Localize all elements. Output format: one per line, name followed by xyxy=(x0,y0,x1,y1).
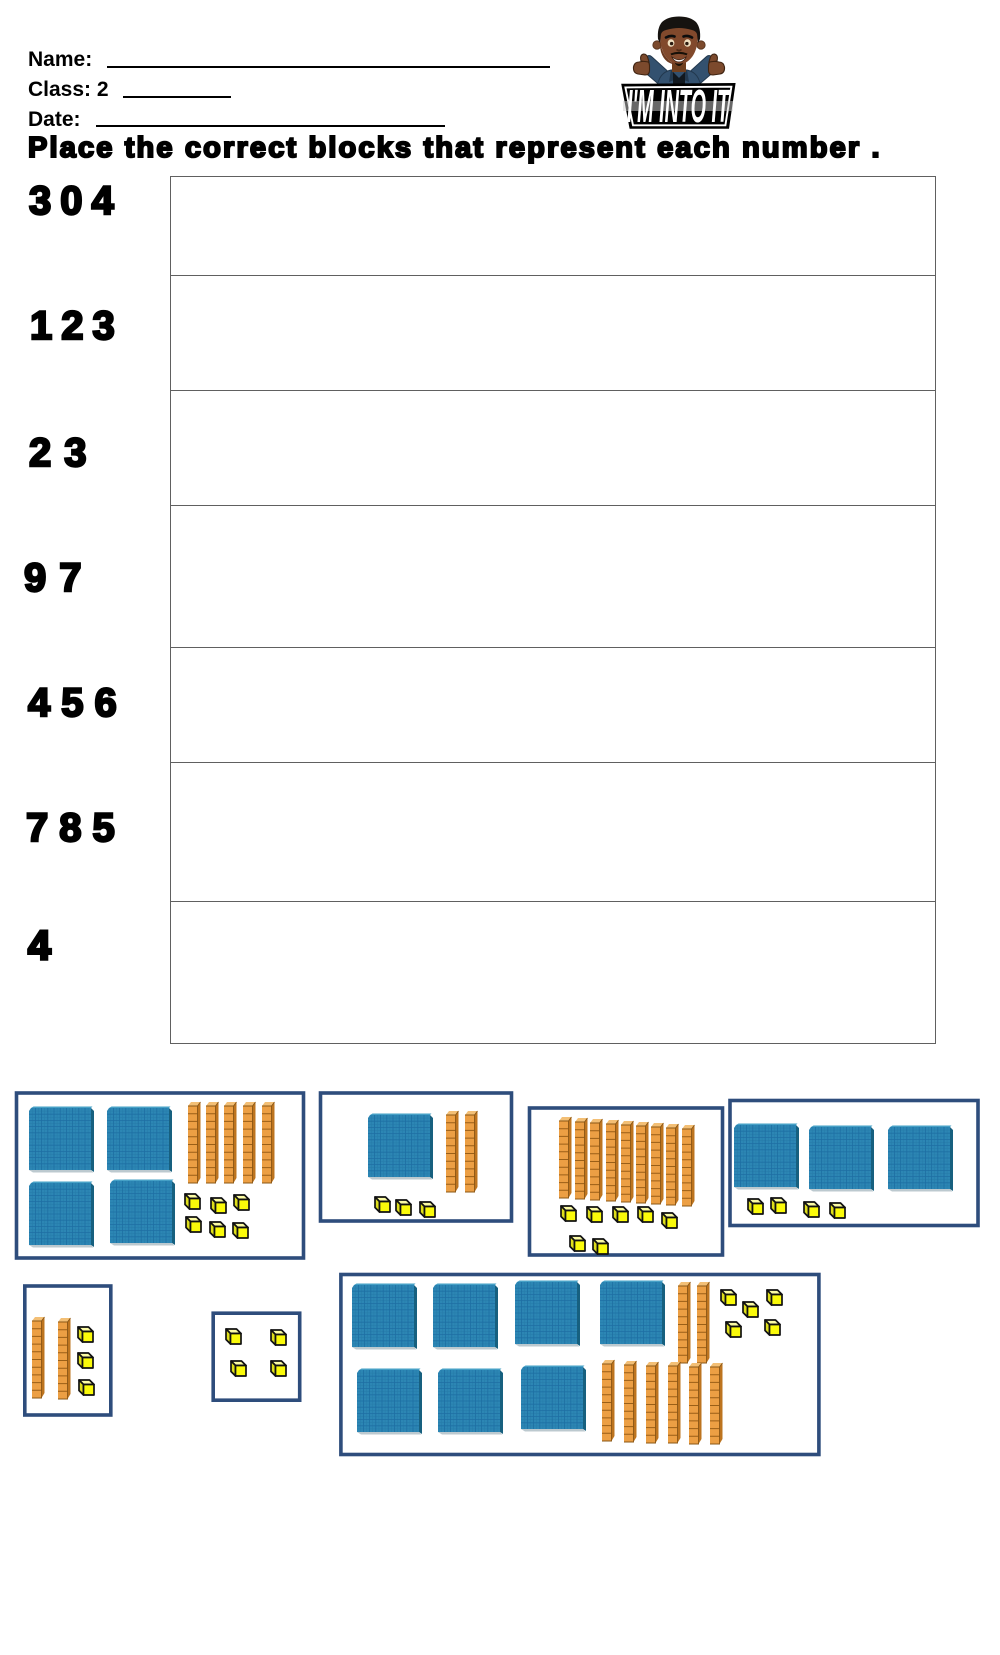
svg-text:I'M INTO IT: I'M INTO IT xyxy=(627,80,731,132)
